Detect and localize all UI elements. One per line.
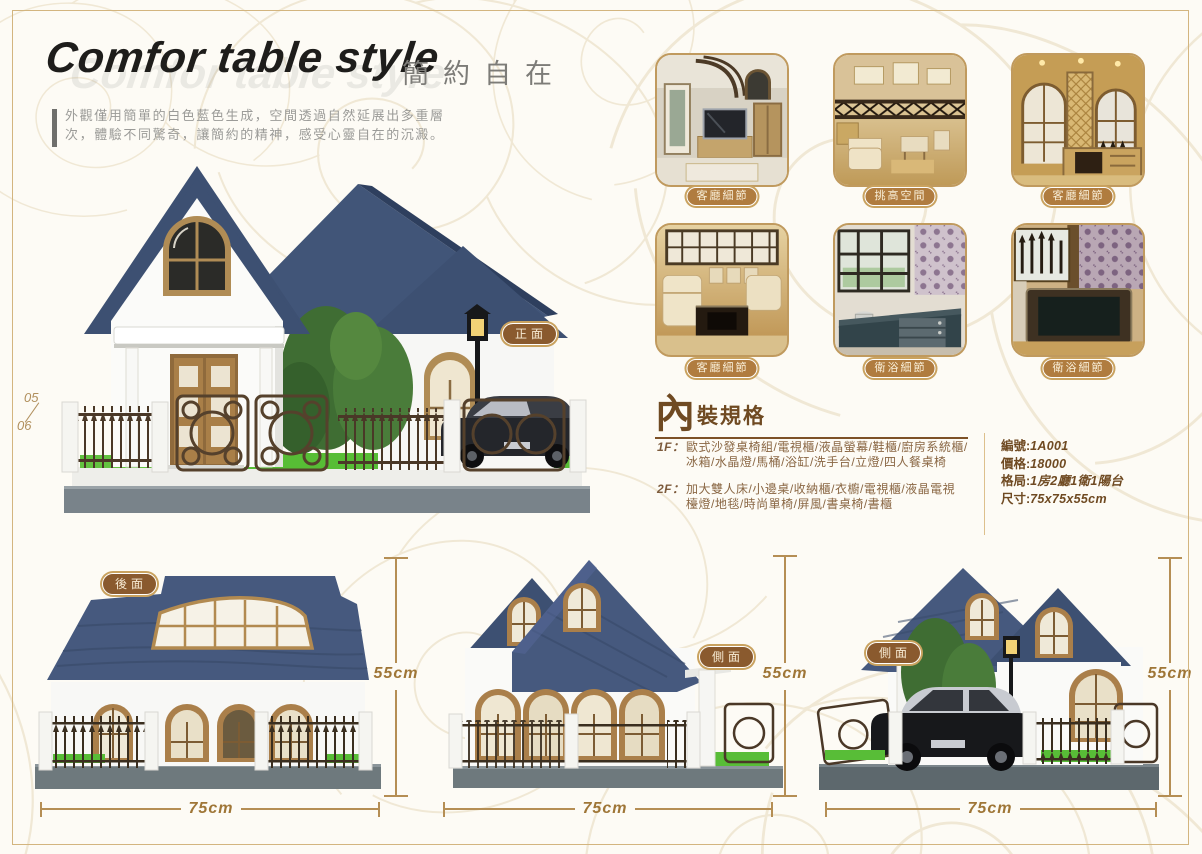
product-info-row: 價格:18000 (1001, 456, 1123, 474)
thumbnail-photo-living-room-tv (655, 53, 789, 187)
height-dim-line (784, 690, 786, 796)
width-dim-label: 75cm (575, 800, 635, 818)
product-info-row: 編號:1A001 (1001, 438, 1123, 456)
page-title-english: Comfor table style (43, 34, 442, 83)
height-dim-line (784, 556, 786, 663)
width-dim-line (241, 808, 378, 810)
side-view-badge-2: 側面 (866, 642, 921, 664)
interior-specs-underline (655, 437, 968, 439)
thumbnail-photo-golden-kitchen (1011, 53, 1145, 187)
width-dim-label: 75cm (960, 800, 1020, 818)
product-price-label: 價格: (1001, 457, 1030, 471)
catalog-page: Comfor table style Comfor table style 簡約… (0, 0, 1202, 854)
spec-floor-1-line-1: 歐式沙發桌椅組/電視櫃/液晶螢幕/鞋櫃/廚房系統櫃/ (686, 440, 968, 454)
spec-floor-1-line-2: 冰箱/水晶燈/馬桶/浴缸/洗手台/立燈/四人餐桌椅 (686, 455, 947, 469)
thumbnail-label: 客廳細節 (1043, 187, 1114, 206)
interior-specs-heading-initial: 內 (655, 394, 695, 434)
height-dim-tick (1158, 795, 1182, 797)
back-view-photo (33, 556, 399, 810)
thumbnail-photo-sofa-set (655, 223, 789, 357)
page-title-chinese: 簡約自在 (402, 52, 566, 91)
height-dim-tick (384, 795, 408, 797)
side-view-photo-1 (437, 552, 787, 808)
spec-floor-2: 2F： 加大雙人床/小邊桌/收納櫃/衣櫥/電視櫃/液晶電視 檯燈/地毯/時尚單椅… (657, 482, 991, 511)
thumbnail-photo-bath-counter (833, 223, 967, 357)
spec-floor-1: 1F： 歐式沙發桌椅組/電視櫃/液晶螢幕/鞋櫃/廚房系統櫃/ 冰箱/水晶燈/馬桶… (657, 440, 991, 469)
height-dim-line (395, 690, 397, 796)
thumbnail-photo-bath-tub (1011, 223, 1145, 357)
spec-floor-1-label: 1F： (657, 440, 685, 455)
back-view-house-illustration (33, 556, 399, 810)
spec-floor-2-line-1: 加大雙人床/小邊桌/收納櫃/衣櫥/電視櫃/液晶電視 (686, 482, 955, 496)
thumbnail-label: 衛浴細節 (1043, 359, 1114, 378)
interior-specs-heading: 內裝規格 (655, 394, 766, 434)
width-dim-tick (378, 802, 380, 817)
height-dim-label: 55cm (755, 665, 815, 683)
thumbnail-label: 挑高空間 (865, 187, 936, 206)
side-view-badge-1: 側面 (699, 646, 754, 668)
product-code-label: 編號: (1001, 439, 1030, 453)
width-dim-label: 75cm (181, 800, 241, 818)
width-dim-tick (771, 802, 773, 817)
product-size-value: 75x75x55cm (1030, 492, 1107, 506)
product-code-value: 1A001 (1030, 439, 1068, 453)
spec-floor-2-label: 2F： (657, 482, 685, 497)
front-view-badge: 正面 (502, 323, 557, 345)
height-dim-label: 55cm (366, 665, 426, 683)
product-size-label: 尺寸: (1001, 492, 1030, 506)
product-info-list: 編號:1A001 價格:18000 格局:1房2廳1衛1陽台 尺寸:75x75x… (1001, 438, 1123, 508)
thumbnail-label: 客廳細節 (687, 187, 758, 206)
height-dim-line (395, 558, 397, 663)
width-dim-line (635, 808, 771, 810)
spec-floor-2-line-2: 檯燈/地毯/時尚單椅/屏風/書桌椅/書櫃 (686, 497, 893, 511)
product-info-row: 格局:1房2廳1衛1陽台 (1001, 473, 1123, 491)
interior-specs-heading-rest: 裝規格 (697, 400, 766, 430)
width-dim-tick (1155, 802, 1157, 817)
product-info-row: 尺寸:75x75x55cm (1001, 491, 1123, 509)
thumbnail-label: 客廳細節 (687, 359, 758, 378)
width-dim-line (827, 808, 960, 810)
side-view-house-illustration-1 (437, 552, 787, 808)
back-view-badge: 後面 (102, 573, 157, 595)
side-view-photo-2 (813, 552, 1165, 808)
specs-info-divider (984, 433, 985, 535)
intro-line-1: 外觀僅用簡單的白色藍色生成，空間透過自然延展出多重層 (65, 108, 445, 123)
side-view-house-illustration-2 (813, 552, 1165, 808)
height-dim-line (1169, 558, 1171, 663)
width-dim-line (42, 808, 181, 810)
thumbnail-photo-loft-space (833, 53, 967, 187)
intro-paragraph: 外觀僅用簡單的白色藍色生成，空間透過自然延展出多重層 次，體驗不同驚奇，讓簡約的… (65, 106, 605, 144)
width-dim-line (445, 808, 575, 810)
product-layout-label: 格局: (1001, 474, 1030, 488)
thumbnail-label: 衛浴細節 (865, 359, 936, 378)
height-dim-label: 55cm (1140, 665, 1200, 683)
intro-accent-bar (52, 109, 57, 147)
intro-line-2: 次，體驗不同驚奇，讓簡約的精神，感受心靈自在的沉澱。 (65, 127, 445, 142)
height-dim-line (1169, 690, 1171, 796)
product-price-value: 18000 (1030, 457, 1066, 471)
height-dim-tick (773, 795, 797, 797)
width-dim-line (1020, 808, 1155, 810)
product-layout-value: 1房2廳1衛1陽台 (1030, 474, 1123, 488)
